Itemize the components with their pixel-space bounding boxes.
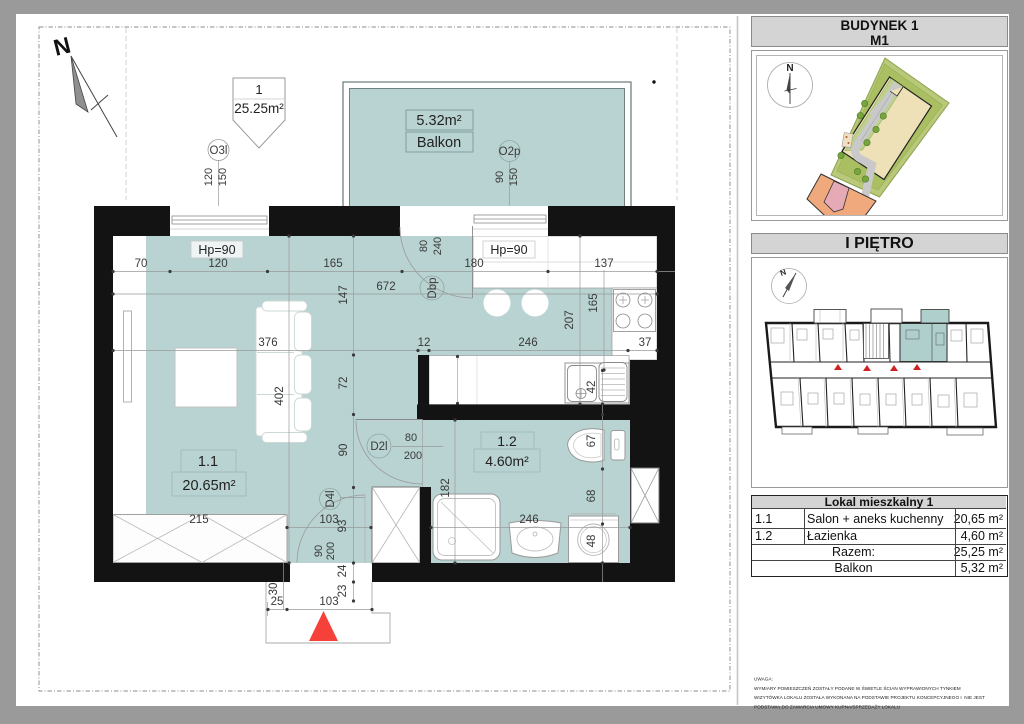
svg-text:Balkon: Balkon — [417, 135, 461, 151]
svg-text:Hp=90: Hp=90 — [490, 243, 527, 257]
svg-text:24: 24 — [337, 564, 349, 577]
svg-text:37: 37 — [639, 337, 652, 349]
svg-text:93: 93 — [337, 520, 349, 533]
svg-text:O3l: O3l — [210, 145, 228, 157]
svg-text:137: 137 — [594, 258, 613, 270]
svg-text:165: 165 — [323, 258, 342, 270]
svg-text:5.32m²: 5.32m² — [416, 113, 461, 129]
svg-text:200: 200 — [404, 450, 422, 462]
svg-text:376: 376 — [258, 337, 277, 349]
svg-text:25.25m²: 25.25m² — [234, 101, 284, 116]
svg-text:72: 72 — [338, 377, 350, 390]
svg-text:120: 120 — [203, 168, 215, 186]
svg-text:70: 70 — [135, 258, 148, 270]
svg-text:246: 246 — [519, 514, 538, 526]
svg-text:90: 90 — [494, 171, 506, 183]
svg-text:246: 246 — [518, 337, 537, 349]
svg-text:1: 1 — [255, 82, 262, 97]
svg-text:25: 25 — [271, 596, 284, 608]
svg-text:67: 67 — [586, 435, 598, 448]
svg-text:180: 180 — [464, 258, 483, 270]
svg-text:80: 80 — [418, 240, 430, 252]
svg-text:23: 23 — [337, 585, 349, 598]
svg-text:103: 103 — [319, 514, 338, 526]
svg-text:O2p: O2p — [499, 146, 521, 158]
svg-text:90: 90 — [338, 444, 350, 457]
svg-text:150: 150 — [217, 168, 229, 186]
svg-text:120: 120 — [208, 258, 227, 270]
svg-text:68: 68 — [586, 490, 598, 503]
svg-text:Dbp: Dbp — [427, 277, 439, 298]
svg-text:147: 147 — [338, 285, 350, 304]
svg-text:N: N — [786, 63, 793, 74]
svg-text:1.1: 1.1 — [198, 454, 218, 470]
svg-text:1.2: 1.2 — [497, 433, 517, 449]
svg-text:4.60m²: 4.60m² — [485, 453, 529, 469]
svg-text:182: 182 — [440, 478, 452, 497]
svg-text:Hp=90: Hp=90 — [198, 243, 235, 257]
svg-text:207: 207 — [564, 310, 576, 329]
svg-text:672: 672 — [376, 281, 395, 293]
svg-text:80: 80 — [405, 432, 417, 444]
svg-text:165: 165 — [588, 293, 600, 312]
svg-text:90: 90 — [313, 545, 325, 557]
svg-text:240: 240 — [432, 237, 444, 255]
svg-text:150: 150 — [508, 168, 520, 186]
svg-text:42: 42 — [586, 381, 598, 394]
svg-text:D2l: D2l — [370, 441, 387, 453]
svg-text:200: 200 — [325, 542, 337, 560]
svg-text:D4l: D4l — [325, 490, 337, 507]
svg-text:402: 402 — [274, 386, 286, 405]
svg-text:215: 215 — [189, 514, 208, 526]
svg-text:12: 12 — [418, 337, 431, 349]
svg-text:48: 48 — [586, 535, 598, 548]
svg-text:20.65m²: 20.65m² — [182, 478, 235, 494]
svg-text:30: 30 — [268, 583, 280, 596]
svg-text:103: 103 — [319, 596, 338, 608]
svg-text:N: N — [51, 32, 73, 61]
